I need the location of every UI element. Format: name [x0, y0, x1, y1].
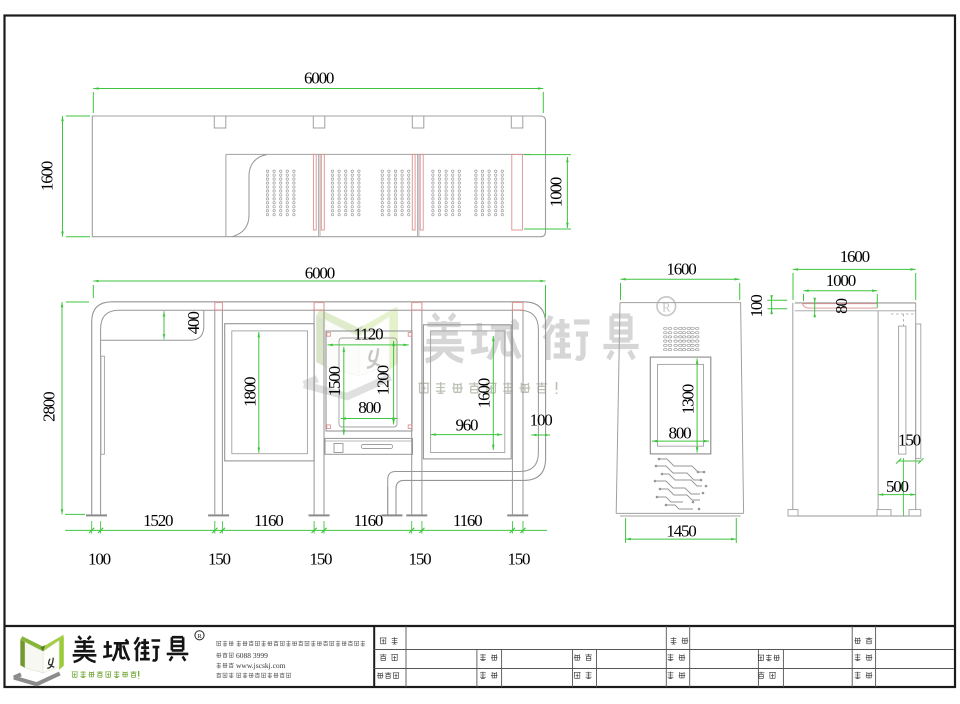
svg-text:1450: 1450 [666, 521, 696, 540]
svg-text:100: 100 [88, 550, 111, 569]
svg-text:150: 150 [309, 550, 332, 569]
svg-text:80: 80 [832, 299, 851, 314]
svg-text:1600: 1600 [38, 161, 57, 191]
svg-text:1500: 1500 [325, 366, 344, 396]
svg-text:100: 100 [747, 295, 766, 318]
svg-text:960: 960 [455, 416, 478, 435]
svg-text:1000: 1000 [547, 177, 566, 207]
svg-text:6088 3999: 6088 3999 [236, 651, 268, 660]
svg-text:150: 150 [409, 550, 432, 569]
svg-text:1600: 1600 [840, 247, 870, 266]
svg-text:1300: 1300 [679, 384, 698, 414]
svg-text:400: 400 [184, 312, 203, 335]
svg-text:R: R [197, 633, 202, 640]
svg-text:1600: 1600 [666, 260, 696, 279]
svg-text:1000: 1000 [826, 271, 856, 290]
svg-text:1200: 1200 [374, 365, 393, 395]
svg-text:2800: 2800 [39, 392, 58, 422]
svg-text:150: 150 [507, 550, 530, 569]
svg-text:800: 800 [358, 398, 381, 417]
svg-text:1120: 1120 [354, 325, 383, 344]
svg-text:1160: 1160 [453, 511, 482, 530]
svg-text:1800: 1800 [241, 377, 260, 407]
svg-text:1600: 1600 [474, 378, 493, 408]
svg-text:R: R [662, 300, 671, 315]
svg-text:6000: 6000 [304, 68, 334, 87]
svg-text:500: 500 [886, 477, 909, 496]
svg-text:150: 150 [208, 550, 231, 569]
svg-text:1160: 1160 [254, 511, 283, 530]
svg-text:150: 150 [898, 430, 921, 449]
svg-text:800: 800 [669, 424, 692, 443]
svg-text:www.jscskj.com: www.jscskj.com [236, 661, 286, 670]
svg-text:100: 100 [530, 411, 553, 430]
svg-text:1520: 1520 [143, 511, 173, 530]
svg-text:6000: 6000 [305, 264, 335, 283]
svg-text:1160: 1160 [354, 511, 383, 530]
